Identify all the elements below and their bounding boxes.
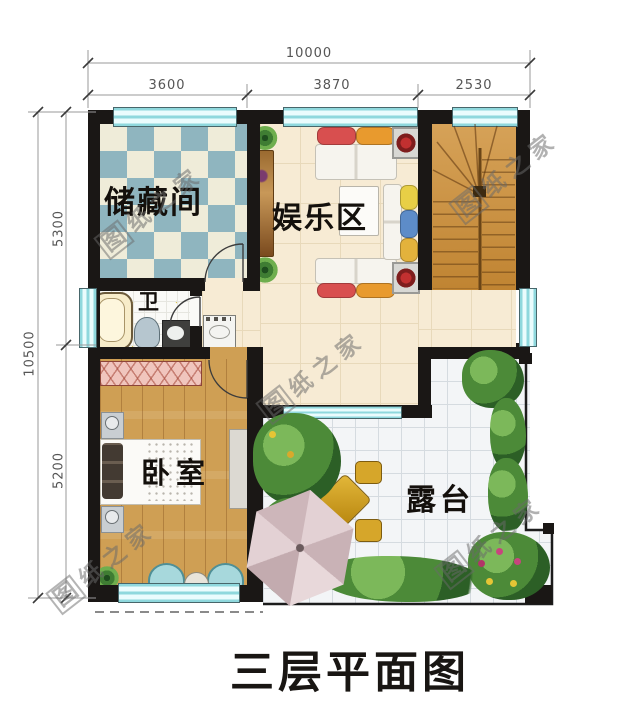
- sofa-top: [315, 144, 397, 180]
- sofa-bottom-pillow-red: [317, 283, 356, 298]
- bath-door-opening: [190, 296, 202, 326]
- flower-pot-top: [392, 127, 420, 159]
- dim-left-seg-1: 5300: [52, 201, 67, 257]
- flower-yellow-icon: [486, 578, 493, 585]
- bathtub-basin: [98, 298, 125, 342]
- page-title: 三层平面图: [150, 636, 550, 700]
- dim-left-total: 10500: [23, 326, 38, 382]
- floorplan-canvas: 10000 3600 3870 2530 10500 5300 5200: [0, 0, 640, 724]
- flower-magenta-icon: [514, 558, 521, 565]
- sofa-bottom: [315, 258, 397, 284]
- outdoor-chair-ne: [355, 461, 382, 484]
- sofa-top-pillow-red: [317, 127, 356, 145]
- window-bathroom: [79, 288, 97, 348]
- outdoor-chair-se: [355, 519, 382, 542]
- room-label-terrace: 露台: [406, 475, 474, 519]
- window-bedroom: [118, 583, 240, 603]
- sofa-bottom-pillow-orange: [356, 283, 395, 298]
- wall-stairs-left: [418, 124, 432, 290]
- dim-left-seg-2: 5200: [52, 443, 67, 499]
- hall-passage-floor: [418, 290, 431, 347]
- sink-basin: [167, 326, 184, 340]
- window-hall-right: [519, 288, 537, 347]
- storage-door-opening: [205, 278, 243, 291]
- sofa-right-pillow-blue: [400, 210, 418, 238]
- washing-machine-drum: [209, 325, 230, 339]
- sofa-top-pillow-orange: [356, 127, 395, 145]
- dim-top-seg-3: 2530: [446, 78, 502, 93]
- shrub-left-upper: [253, 413, 341, 505]
- wall-storage-right: [247, 110, 260, 280]
- window-storage: [113, 107, 237, 127]
- lamp-bottom-icon: [105, 510, 119, 524]
- sofa-right-pillow-gold: [400, 238, 418, 262]
- wall-storage-bottom-stub: [243, 278, 260, 291]
- room-label-entertainment: 娱乐区: [272, 193, 368, 237]
- wall-bedroom-top: [88, 347, 210, 359]
- toilet: [134, 317, 160, 348]
- dim-top-total: 10000: [279, 46, 339, 61]
- flower-yellow-icon: [287, 451, 294, 458]
- bedroom-door-opening: [210, 347, 247, 359]
- washing-machine-knobs: [206, 317, 231, 321]
- flower-yellow-icon: [269, 431, 276, 438]
- window-stairs: [452, 107, 518, 127]
- shrub-top-right: [462, 350, 524, 408]
- dim-top-seg-2: 3870: [304, 78, 360, 93]
- dresser: [229, 429, 248, 509]
- lamp-top-icon: [105, 416, 119, 430]
- hall-nook-floor: [431, 290, 516, 347]
- room-label-bathroom: 卫: [138, 286, 159, 316]
- room-label-bedroom: 卧室: [141, 450, 211, 492]
- wardrobe: [100, 361, 202, 386]
- flower-yellow-icon: [510, 580, 517, 587]
- bed-pillows: [102, 443, 123, 499]
- window-entertainment: [283, 107, 418, 127]
- dim-top-seg-1: 3600: [139, 78, 195, 93]
- flower-pot-bottom: [392, 262, 420, 294]
- sofa-right-pillow-yellow: [400, 185, 418, 210]
